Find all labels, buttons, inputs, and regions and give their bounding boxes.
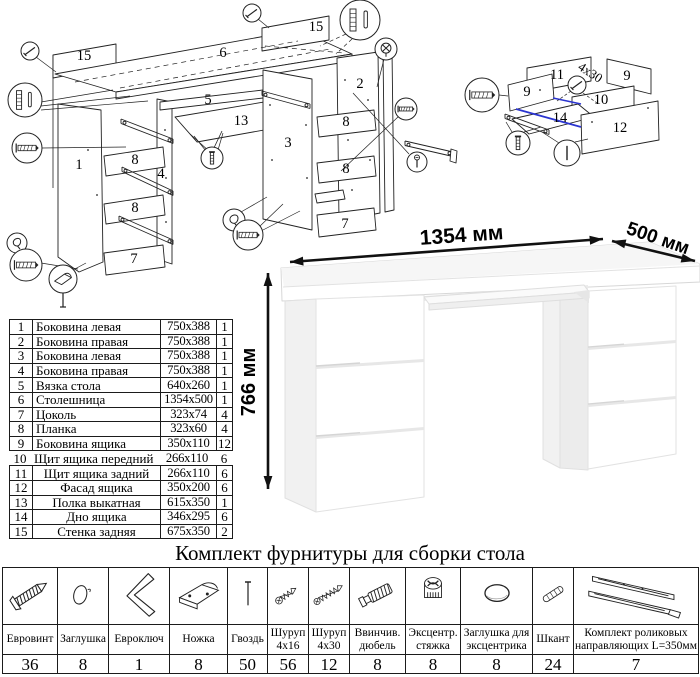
screw-4x16-icon: [268, 568, 309, 625]
part-num: 14: [10, 510, 32, 524]
hardware-qty: 36: [3, 655, 58, 674]
parts-table: 1Боковина левая750x38812Боковина правая7…: [9, 319, 233, 539]
table-row: 6Столешница1354x5001: [10, 392, 232, 407]
part-size: 323x60: [160, 422, 216, 436]
hardware-name: Комплект роликовых направляющих L=350мм: [574, 625, 699, 655]
part-name: Боковина левая: [32, 349, 160, 363]
dowel-screw-icon: [350, 568, 406, 625]
part-num: 5: [10, 378, 32, 392]
svg-text:15: 15: [77, 48, 92, 64]
table-row: 5Вязка стола640x2601: [10, 377, 232, 392]
part-size: 266x110: [159, 451, 215, 465]
part-name: Щит ящика задний: [32, 466, 160, 480]
part-num: 13: [10, 496, 32, 510]
part-num: 1: [10, 320, 32, 334]
svg-text:9: 9: [623, 68, 630, 84]
hardware-name: Эксцентр. стяжка: [406, 625, 461, 655]
hardware-name: Ножка: [170, 625, 228, 655]
callout-shkant-v-icon: [554, 140, 580, 166]
cam-lock-icon: [406, 568, 461, 625]
hardware-name: Евровинт: [3, 625, 58, 655]
part-size: 323x74: [160, 408, 216, 422]
callout-screw-diag-icon: [243, 4, 261, 22]
part-name: Стенка задняя: [32, 525, 160, 539]
svg-text:8: 8: [131, 200, 138, 216]
table-row: 4Боковина правая750x3881: [10, 363, 232, 378]
svg-text:1354 мм: 1354 мм: [419, 221, 504, 250]
svg-text:7: 7: [341, 216, 348, 232]
part-size: 350x110: [160, 437, 216, 451]
desk-render: [281, 242, 700, 512]
hardware-qty: 8: [461, 655, 533, 674]
callout-euro-h-icon: [10, 249, 42, 281]
part-size: 750x388: [160, 364, 216, 378]
part-size: 640x260: [160, 378, 216, 392]
part-num: 6: [10, 393, 32, 407]
hardware-qty: 8: [350, 655, 406, 674]
part-name: Боковина ящика: [32, 437, 160, 451]
svg-text:766 мм: 766 мм: [238, 348, 260, 417]
part-num: 10: [9, 451, 31, 465]
hardware-qty: 24: [533, 655, 574, 674]
part-name: Фасад ящика: [32, 481, 160, 495]
hardware-name: Гвоздь: [228, 625, 268, 655]
part-size: 266x110: [160, 466, 216, 480]
part-qty: 1: [216, 393, 232, 407]
part-num: 8: [10, 422, 32, 436]
hardware-qty: 56: [268, 655, 309, 674]
drawer-slides-icon: [574, 568, 699, 625]
part-name: Цоколь: [32, 408, 160, 422]
hardware-name: Заглушка: [58, 625, 109, 655]
table-row: 8Планка323x604: [10, 421, 232, 436]
hardware-table: ЕвровинтЗаглушкаЕвроключНожкаГвоздьШуруп…: [2, 567, 699, 674]
part-num: 12: [10, 481, 32, 495]
part-size: 750x388: [160, 335, 216, 349]
svg-text:14: 14: [553, 110, 568, 126]
table-row: 14Дно ящика346x2956: [10, 509, 232, 524]
part-name: Щит ящика передний: [31, 451, 159, 465]
table-row: 10Щит ящика передний266x1106: [9, 451, 233, 465]
table-row: 9Боковина ящика350x11012: [10, 436, 232, 451]
hardware-name: Шуруп 4x16: [268, 625, 309, 655]
nail-icon: [228, 568, 268, 625]
part-qty: 6: [216, 481, 232, 495]
table-row: 12Фасад ящика350x2006: [10, 480, 232, 495]
svg-text:3: 3: [284, 135, 291, 151]
svg-text:8: 8: [131, 152, 138, 168]
part-num: 4: [10, 364, 32, 378]
hardware-name: Евроключ: [109, 625, 170, 655]
hardware-name: Шкант: [533, 625, 574, 655]
part-name: Боковина правая: [32, 364, 160, 378]
callout-euro-h-icon: [233, 220, 263, 250]
part-size: 1354x500: [160, 393, 216, 407]
hardware-name: Заглушка для эксцентрика: [461, 625, 533, 655]
hardware-qty: 7: [574, 655, 699, 674]
hardware-qty: 12: [309, 655, 350, 674]
svg-text:10: 10: [594, 92, 609, 108]
svg-text:4: 4: [157, 166, 165, 182]
callout-screw-diag-icon: [21, 42, 39, 60]
svg-text:8: 8: [342, 114, 349, 130]
callout-dowel-pin-icon: [8, 83, 42, 117]
hardware-qty: 8: [170, 655, 228, 674]
callout-bolt-v-icon: [506, 131, 530, 155]
part-size: 750x388: [160, 320, 216, 334]
part-num: 15: [10, 525, 32, 539]
svg-text:8: 8: [342, 161, 349, 177]
table-row: 11Щит ящика задний266x1106: [10, 466, 232, 480]
svg-text:6: 6: [219, 45, 226, 61]
parts-table-block-bottom: 11Щит ящика задний266x110612Фасад ящика3…: [9, 465, 233, 539]
part-qty: 4: [216, 408, 232, 422]
table-row: 2Боковина правая750x3881: [10, 334, 232, 349]
part-qty: 1: [216, 496, 232, 510]
plug-icon: [58, 568, 109, 625]
part-name: Планка: [32, 422, 160, 436]
svg-text:9: 9: [523, 84, 530, 100]
parts-table-row-10: 10Щит ящика передний266x1106: [9, 451, 233, 465]
callout-bolt-v-icon: [201, 147, 223, 169]
hardware-qty: 1: [109, 655, 170, 674]
part-name: Столешница: [32, 393, 160, 407]
hardware-qty: 8: [406, 655, 461, 674]
furniture-leg-icon: [170, 568, 228, 625]
svg-text:12: 12: [613, 120, 628, 136]
callout-leg-mini-icon: [49, 265, 77, 293]
part-size: 675x350: [160, 525, 216, 539]
part-name: Полка выкатная: [32, 496, 160, 510]
svg-text:1: 1: [75, 157, 82, 173]
wood-dowel-icon: [533, 568, 574, 625]
callout-screw-diag-icon: [568, 76, 586, 94]
svg-text:15: 15: [309, 19, 324, 35]
svg-text:7: 7: [130, 251, 137, 267]
part-name: Дно ящика: [32, 510, 160, 524]
part-name: Боковина правая: [32, 335, 160, 349]
part-qty: 1: [216, 320, 232, 334]
table-row: 15Стенка задняя675x3502: [10, 524, 232, 539]
part-num: 9: [10, 437, 32, 451]
svg-text:2: 2: [356, 76, 363, 92]
part-qty: 6: [216, 466, 232, 480]
part-qty: 6: [216, 510, 232, 524]
callout-euro-h-icon: [12, 133, 42, 163]
part-num: 7: [10, 408, 32, 422]
table-row: 13Полка выкатная615x3501: [10, 495, 232, 510]
table-row: 7Цоколь323x744: [10, 407, 232, 422]
part-qty: 1: [216, 378, 232, 392]
part-qty: 6: [215, 451, 233, 465]
callout-screw-v-icon: [407, 152, 427, 172]
part-num: 2: [10, 335, 32, 349]
part-size: 346x295: [160, 510, 216, 524]
part-size: 350x200: [160, 481, 216, 495]
hex-key-icon: [109, 568, 170, 625]
hardware-name: Ввинчив. дюбель: [350, 625, 406, 655]
hardware-qty: 50: [228, 655, 268, 674]
callout-cam-icon: [375, 38, 397, 60]
assembly-instruction-page: 1354 мм500 мм766 мм156155133148872887119…: [0, 0, 700, 677]
svg-text:11: 11: [550, 67, 564, 83]
part-name: Вязка стола: [32, 378, 160, 392]
part-qty: 4: [216, 422, 232, 436]
part-qty: 1: [216, 335, 232, 349]
part-name: Боковина левая: [32, 320, 160, 334]
screw-4x30-icon: [309, 568, 350, 625]
parts-table-block-top: 1Боковина левая750x38812Боковина правая7…: [9, 319, 233, 451]
part-size: 615x350: [160, 496, 216, 510]
part-num: 11: [10, 466, 32, 480]
callout-dowel-pin-icon: [340, 0, 380, 40]
hardware-qty: 8: [58, 655, 109, 674]
callout-euro-h-icon: [465, 78, 499, 112]
callout-euro-h-icon: [395, 98, 417, 120]
euro-screw-icon: [3, 568, 58, 625]
svg-text:5: 5: [204, 92, 211, 108]
part-qty: 1: [216, 349, 232, 363]
cam-cover-icon: [461, 568, 533, 625]
table-row: 3Боковина левая750x3881: [10, 348, 232, 363]
part-size: 750x388: [160, 349, 216, 363]
part-qty: 2: [216, 525, 232, 539]
part-qty: 1: [216, 364, 232, 378]
part-num: 3: [10, 349, 32, 363]
svg-text:13: 13: [234, 113, 249, 129]
hardware-name: Шуруп 4x30: [309, 625, 350, 655]
hardware-kit-title: Комплект фурнитуры для сборки стола: [0, 541, 700, 566]
part-qty: 12: [216, 437, 232, 451]
table-row: 1Боковина левая750x3881: [10, 320, 232, 334]
